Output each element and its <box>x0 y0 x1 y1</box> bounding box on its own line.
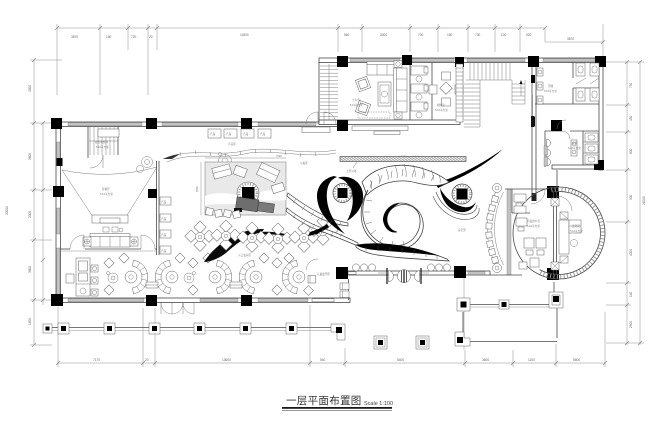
svg-text:男厕: 男厕 <box>548 84 554 88</box>
svg-text:7170: 7170 <box>93 358 100 362</box>
svg-text:产品: 产品 <box>210 132 216 136</box>
svg-text:产品: 产品 <box>260 132 266 136</box>
svg-text:Scale 1:100: Scale 1:100 <box>364 401 393 407</box>
svg-text:540: 540 <box>320 358 326 362</box>
svg-text:900: 900 <box>629 194 633 200</box>
svg-text:2900: 2900 <box>629 321 633 328</box>
svg-text:150: 150 <box>106 35 112 39</box>
svg-text:5.10平方米: 5.10平方米 <box>527 224 540 228</box>
svg-text:十平室」: 十平室」 <box>352 98 362 102</box>
svg-text:20000: 20000 <box>5 206 9 215</box>
svg-text:140: 140 <box>629 291 633 297</box>
svg-text:5.10平方米: 5.10平方米 <box>435 108 448 112</box>
svg-text:11800: 11800 <box>240 33 249 37</box>
svg-text:5.10平方米: 5.10平方米 <box>350 103 363 107</box>
svg-text:3000: 3000 <box>380 33 387 37</box>
svg-text:声音区: 声音区 <box>228 142 236 146</box>
svg-text:3600: 3600 <box>28 153 32 160</box>
svg-text:产品: 产品 <box>161 217 167 221</box>
svg-text:560: 560 <box>344 33 350 37</box>
svg-text:5.10平方米: 5.10平方米 <box>568 146 581 150</box>
svg-text:1500: 1500 <box>28 318 32 325</box>
svg-text:5.10平方米: 5.10平方米 <box>544 89 557 93</box>
svg-text:1100: 1100 <box>528 358 535 362</box>
svg-text:13600: 13600 <box>222 358 231 362</box>
svg-text:5.10平方米: 5.10平方米 <box>570 229 583 233</box>
svg-text:入口玄关区: 入口玄关区 <box>238 253 251 257</box>
svg-text:女厕: 女厕 <box>572 141 578 145</box>
svg-text:观景电梯间: 观景电梯间 <box>95 140 108 144</box>
svg-text:3870: 3870 <box>71 35 78 39</box>
svg-text:450: 450 <box>629 115 633 121</box>
svg-text:5.10平方米: 5.10平方米 <box>100 192 113 196</box>
svg-text:3600: 3600 <box>28 266 32 273</box>
svg-text:产品: 产品 <box>226 132 232 136</box>
svg-text:产品: 产品 <box>161 233 167 237</box>
svg-text:产品: 产品 <box>243 132 249 136</box>
svg-text:7500: 7500 <box>276 154 282 158</box>
svg-text:影视厅: 影视厅 <box>102 187 110 191</box>
svg-text:5.10平方米: 5.10平方米 <box>96 145 109 149</box>
svg-text:700: 700 <box>418 33 424 37</box>
svg-text:5000: 5000 <box>195 186 199 192</box>
svg-text:150: 150 <box>447 33 453 37</box>
svg-text:产品: 产品 <box>161 200 167 204</box>
svg-text:730: 730 <box>475 33 481 37</box>
svg-text:3600: 3600 <box>482 358 489 362</box>
svg-text:贵宾间: 贵宾间 <box>572 224 580 228</box>
svg-text:4200: 4200 <box>629 249 633 256</box>
svg-text:750: 750 <box>629 82 633 88</box>
svg-text:儿童娱乐区: 儿童娱乐区 <box>317 272 330 276</box>
svg-text:21000: 21000 <box>642 196 646 205</box>
svg-text:产品: 产品 <box>161 249 167 253</box>
svg-text:100: 100 <box>501 33 507 37</box>
svg-text:920: 920 <box>526 33 532 37</box>
svg-text:720: 720 <box>131 35 137 39</box>
svg-text:3870: 3870 <box>567 37 574 41</box>
svg-text:4500: 4500 <box>28 85 32 92</box>
svg-text:2000: 2000 <box>28 211 32 218</box>
svg-text:20: 20 <box>149 35 153 39</box>
svg-text:5600: 5600 <box>573 358 580 362</box>
svg-text:20: 20 <box>145 358 149 362</box>
svg-text:演艺区: 演艺区 <box>458 228 466 232</box>
svg-text:600: 600 <box>629 148 633 154</box>
svg-text:棋牌室: 棋牌室 <box>437 103 445 107</box>
svg-text:5400: 5400 <box>397 358 404 362</box>
svg-text:上行公用: 上行公用 <box>346 169 357 173</box>
svg-text:行政办公室: 行政办公室 <box>527 219 540 223</box>
svg-text:一层平面布置图: 一层平面布置图 <box>286 395 362 407</box>
svg-text:沙发区: 沙发区 <box>300 161 308 165</box>
